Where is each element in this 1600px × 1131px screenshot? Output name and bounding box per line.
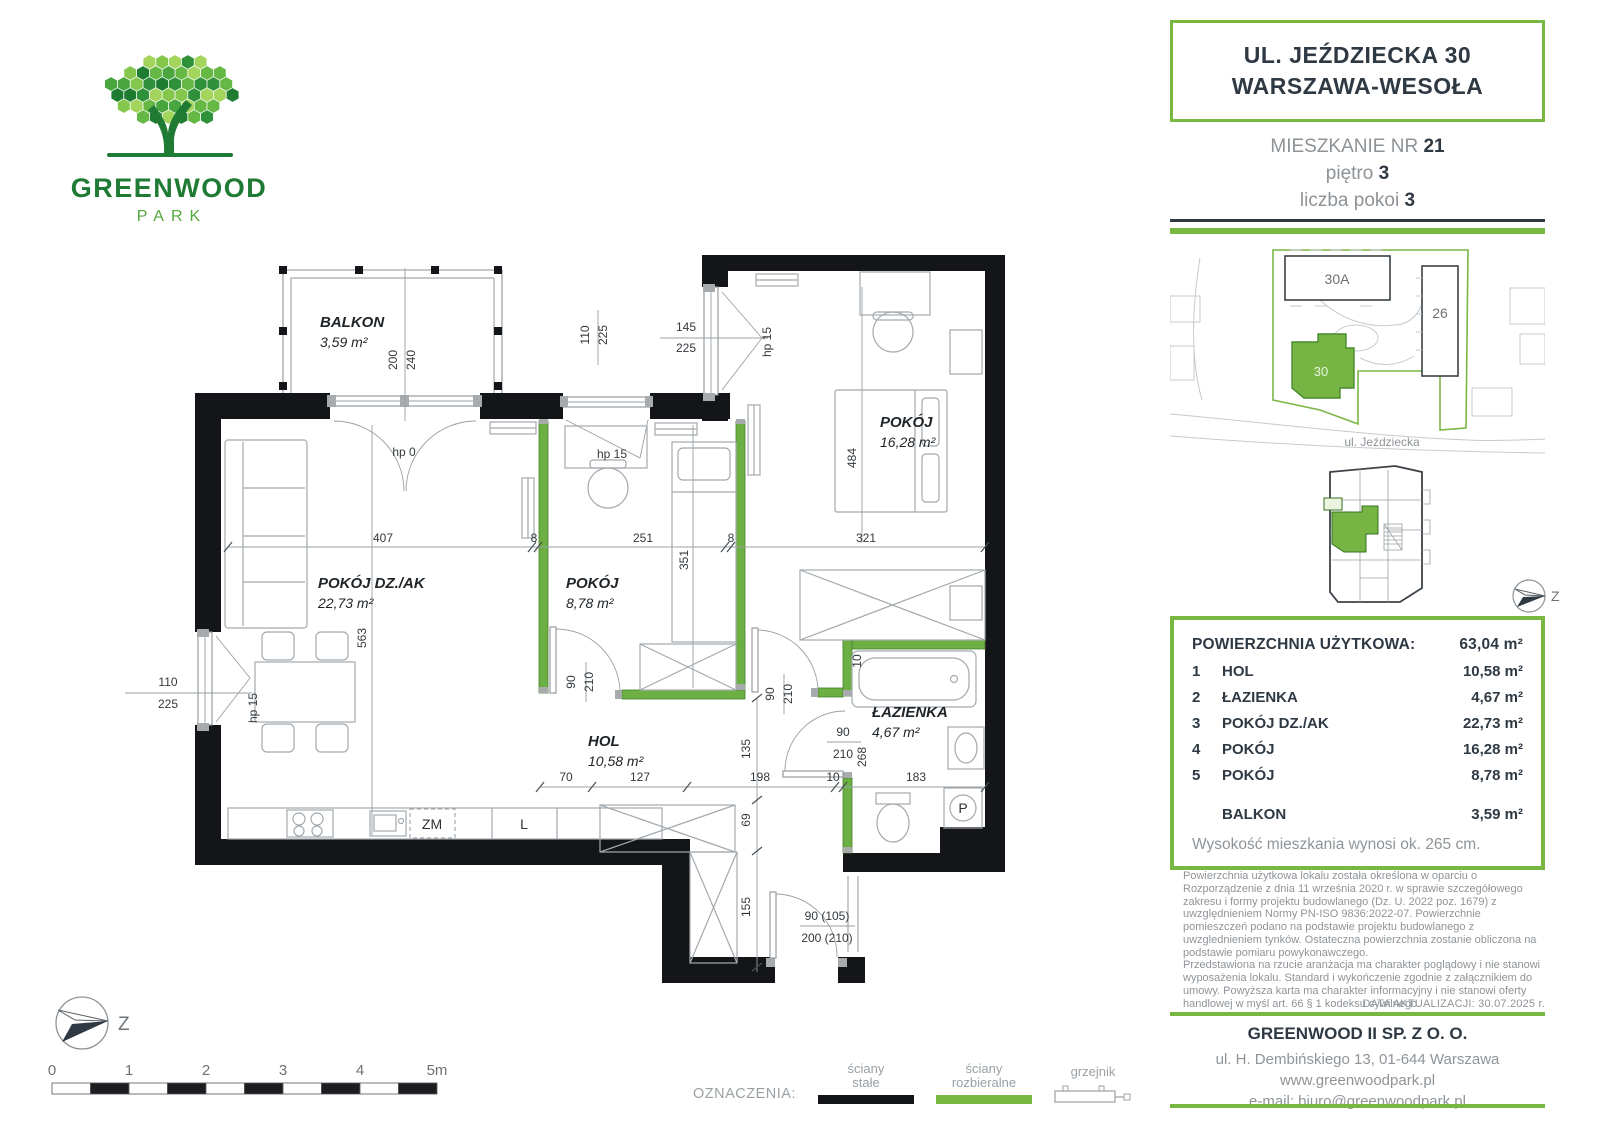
dim-label: 70	[559, 770, 573, 784]
greenwood-park-logo: GREENWOOD PARK	[55, 35, 295, 230]
scale-and-compass: Z 012345m	[20, 950, 490, 1115]
areas-title-row: POWIERZCHNIA UŻYTKOWA: 63,04 m²	[1192, 636, 1523, 654]
dim-label: 210	[582, 672, 596, 692]
solid-wall-swatch	[818, 1095, 914, 1104]
room-label: ŁAZIENKA	[871, 704, 948, 721]
room-area-label: 8,78 m²	[566, 595, 615, 611]
logo-leaf-hex	[201, 88, 213, 102]
dim-label: 8	[728, 531, 735, 545]
logo-leaf-hex	[195, 55, 207, 69]
legend-radiator-label: grzejnik	[1071, 1065, 1116, 1080]
logo-leaf-hex	[150, 66, 162, 80]
logo-leaf-hex	[156, 55, 168, 69]
logo-leaf-hex	[169, 55, 181, 69]
removable-wall-swatch	[936, 1095, 1032, 1104]
room-label: POKÓJ	[880, 413, 933, 431]
svg-text:26: 26	[1432, 305, 1448, 321]
logo-leaf-hex	[201, 66, 213, 80]
doors	[334, 421, 858, 958]
dim-label: 145	[676, 320, 696, 334]
footer: GREENWOOD II SP. Z O. O. ul. H. Dembińsk…	[1170, 1022, 1545, 1112]
logo-leaf-hex	[214, 66, 226, 80]
logo-leaf-hex	[131, 77, 143, 91]
legend-removable-walls: ściany rozbieralne	[936, 1062, 1032, 1104]
dim-label: 240	[404, 350, 418, 370]
logo-leaf-hex	[182, 55, 194, 69]
area-row: 4POKÓJ16,28 m²	[1192, 741, 1523, 758]
logo-leaf-hex	[227, 88, 239, 102]
dim-label: 321	[856, 531, 876, 545]
legend-solid-line2: stałe	[848, 1076, 885, 1091]
floor-value: 3	[1379, 163, 1390, 184]
logo-leaf-hex	[175, 88, 187, 102]
fridge-label: L	[520, 816, 528, 832]
dim-label: 484	[845, 448, 859, 468]
unit-info: MIESZKANIE NR 21 piętro 3 liczba pokoi 3	[1170, 134, 1545, 215]
logo-leaf-hex	[207, 99, 219, 113]
building-30-highlighted: 30	[1292, 334, 1354, 398]
dim-label: hp 15	[246, 693, 260, 723]
unit-label: MIESZKANIE NR	[1270, 136, 1418, 157]
dim-label: 90	[836, 725, 850, 739]
logo-leaf-hex	[195, 99, 207, 113]
dim-label: 225	[596, 325, 610, 345]
scale-tick-label: 5m	[427, 1062, 448, 1079]
walls-removable	[539, 419, 985, 967]
room-area-label: 22,73 m²	[317, 595, 375, 611]
logo-leaf-hex	[201, 110, 213, 124]
areas-panel: POWIERZCHNIA UŻYTKOWA: 63,04 m² 1HOL10,5…	[1170, 616, 1545, 870]
area-row-name: POKÓJ DZ./AK	[1222, 715, 1463, 732]
room-label: BALKON	[320, 314, 385, 331]
rooms-value: 3	[1404, 190, 1415, 211]
legend-radiator: grzejnik	[1054, 1065, 1132, 1104]
scale-tick-label: 3	[279, 1062, 287, 1079]
areas-title: POWIERZCHNIA UŻYTKOWA:	[1192, 636, 1415, 654]
address-header: UL. JEŹDZIECKA 30 WARSZAWA-WESOŁA	[1170, 20, 1545, 122]
dim-label: 210	[781, 684, 795, 704]
floor-key-plan	[1300, 460, 1450, 612]
scale-segment	[399, 1083, 438, 1094]
room-area-label: 3,59 m²	[320, 334, 369, 350]
scale-tick-label: 4	[356, 1062, 364, 1079]
logo-leaf-hex	[156, 77, 168, 91]
logo-leaf-hex	[175, 66, 187, 80]
logo-leaf-hex	[150, 88, 162, 102]
building-30a: 30A	[1285, 250, 1390, 306]
dim-label: 155	[739, 897, 753, 917]
dim-label: 210	[833, 747, 853, 761]
dim-label: 10	[826, 770, 840, 784]
scale-segment	[168, 1083, 207, 1094]
washer-label: P	[958, 800, 967, 816]
logo-leaf-hex	[143, 55, 155, 69]
logo-leaf-hex	[195, 77, 207, 91]
dim-label: 127	[630, 770, 650, 784]
legend-solid-line1: ściany	[848, 1062, 885, 1077]
room-label: POKÓJ DZ./AK	[318, 574, 426, 592]
dim-label: 200 (210)	[801, 931, 852, 945]
header-green-bar	[1170, 228, 1545, 234]
company-name: GREENWOOD II SP. Z O. O.	[1170, 1022, 1545, 1046]
area-row-name: POKÓJ	[1222, 767, 1471, 784]
dim-label: 268	[855, 747, 869, 767]
scale-segment	[245, 1083, 284, 1094]
area-row-no: 1	[1192, 663, 1222, 680]
height-note: Wysokość mieszkania wynosi ok. 265 cm.	[1192, 836, 1523, 854]
scale-tick-label: 0	[48, 1062, 56, 1079]
area-row-area: 10,58 m²	[1463, 663, 1523, 680]
dim-label: 225	[158, 697, 178, 711]
area-row-name: ŁAZIENKA	[1222, 689, 1471, 706]
floor-plan: ZM L P BALKON3,59 m²POKÓJ DZ./AK22,73 m²…	[0, 230, 1140, 1020]
areas-total: 63,04 m²	[1459, 636, 1523, 654]
area-row: 3POKÓJ DZ./AK22,73 m²	[1192, 715, 1523, 732]
scale-segment	[283, 1083, 322, 1094]
footer-rule-top	[1170, 1012, 1545, 1016]
dim-label: 200	[386, 350, 400, 370]
logo-leaf-hex	[188, 88, 200, 102]
area-row-no: 3	[1192, 715, 1222, 732]
rooms-count-line: liczba pokoi 3	[1170, 188, 1545, 215]
area-row-name: POKÓJ	[1222, 741, 1463, 758]
area-row-no: 5	[1192, 767, 1222, 784]
logo-leaf-hex	[137, 88, 149, 102]
area-row-name: HOL	[1222, 663, 1463, 680]
area-row: 1HOL10,58 m²	[1192, 663, 1523, 680]
area-row-area: 16,28 m²	[1463, 741, 1523, 758]
scale-segment	[206, 1083, 245, 1094]
logo-leaf-hex	[143, 77, 155, 91]
dishwasher-label: ZM	[422, 816, 442, 832]
balcony-outline	[279, 266, 502, 393]
svg-text:30A: 30A	[1325, 271, 1351, 287]
room-area-label: 4,67 m²	[872, 724, 921, 740]
floor-label: piętro	[1326, 163, 1374, 184]
scale-segment	[322, 1083, 361, 1094]
dim-label: 135	[739, 739, 753, 759]
areas-rows: 1HOL10,58 m²2ŁAZIENKA4,67 m²3POKÓJ DZ./A…	[1192, 654, 1523, 823]
area-row-area: 22,73 m²	[1463, 715, 1523, 732]
logo-leaf-hex	[182, 77, 194, 91]
dim-label: 351	[677, 550, 691, 570]
address-line-2: WARSZAWA-WESOŁA	[1173, 71, 1542, 102]
logo-leaf-hex	[124, 88, 136, 102]
logo-leaf-hex	[137, 66, 149, 80]
logo-leaf-hex	[111, 88, 123, 102]
room-label: POKÓJ	[566, 574, 619, 592]
building-26: 26	[1416, 266, 1458, 376]
disclaimer: Powierzchnia użytkowa lokalu została okr…	[1183, 870, 1541, 1010]
scale-segment	[129, 1083, 168, 1094]
room-area-label: 16,28 m²	[880, 434, 937, 450]
dim-label: hp 0	[392, 445, 416, 459]
unit-number-line: MIESZKANIE NR 21	[1170, 134, 1545, 161]
legend-removable-line2: rozbieralne	[952, 1076, 1016, 1091]
logo-leaf-hex	[105, 77, 117, 91]
street-label: ul. Jeździecka	[1344, 435, 1420, 449]
dim-label: 69	[739, 813, 753, 827]
dim-label: 90	[763, 687, 777, 701]
update-date: DATA AKTUALIZACJI: 30.07.2025 r.	[1170, 998, 1545, 1010]
room-area-label: 10,58 m²	[588, 753, 645, 769]
legend: OZNACZENIA: ściany stałe ściany rozbiera…	[693, 1046, 1153, 1104]
dim-label: 225	[676, 341, 696, 355]
area-row-no: 2	[1192, 689, 1222, 706]
unit-number: 21	[1423, 136, 1444, 157]
legend-title: OZNACZENIA:	[693, 1086, 796, 1104]
logo-leaf-hex	[124, 66, 136, 80]
legend-solid-walls: ściany stałe	[818, 1062, 914, 1104]
area-row-area: 8,78 m²	[1471, 767, 1523, 784]
dim-label: 110	[578, 325, 592, 344]
north-label-main: Z	[118, 1014, 130, 1035]
dim-label: 198	[750, 770, 770, 784]
scale-tick-label: 1	[125, 1062, 133, 1079]
area-row: 2ŁAZIENKA4,67 m²	[1192, 689, 1523, 706]
logo-leaf-hex	[214, 88, 226, 102]
radiator-icon	[1054, 1084, 1132, 1104]
area-row-no	[1192, 806, 1222, 823]
area-row-area: 3,59 m²	[1471, 806, 1523, 823]
company-email: e-mail: biuro@greenwoodpark.pl	[1170, 1091, 1545, 1112]
scale-bar: 012345m	[48, 1062, 448, 1094]
logo-leaf-hex	[118, 99, 130, 113]
dim-label: 183	[906, 770, 926, 784]
north-arrow-main: Z	[56, 997, 130, 1049]
legend-removable-line1: ściany	[952, 1062, 1016, 1077]
logo-title: GREENWOOD	[71, 173, 268, 203]
header-divider	[1170, 219, 1545, 222]
logo-ground-line	[107, 153, 233, 157]
dim-label: 110	[158, 675, 177, 689]
dim-label: hp 15	[597, 447, 627, 461]
logo-subtitle: PARK	[137, 208, 207, 225]
disclaimer-paragraph-1: Powierzchnia użytkowa lokalu została okr…	[1183, 870, 1541, 959]
area-row-name: BALKON	[1222, 806, 1471, 823]
north-label: Z	[1551, 588, 1560, 604]
dim-label: 407	[373, 531, 393, 545]
logo-leaf-hex	[207, 77, 219, 91]
room-label: HOL	[588, 733, 620, 750]
scale-tick-label: 2	[202, 1062, 210, 1079]
logo-leaf-hex	[188, 110, 200, 124]
floor-line: piętro 3	[1170, 161, 1545, 188]
logo-leaf-hex	[137, 110, 149, 124]
logo-tree-crown	[105, 55, 239, 124]
area-row-no: 4	[1192, 741, 1222, 758]
scale-segment	[52, 1083, 91, 1094]
area-row: BALKON3,59 m²	[1192, 806, 1523, 823]
dim-label: 8	[531, 531, 538, 545]
logo-leaf-hex	[163, 66, 175, 80]
company-address: ul. H. Dembińskiego 13, 01-644 Warszawa	[1170, 1049, 1545, 1070]
logo-leaf-hex	[118, 77, 130, 91]
dim-label: hp 15	[760, 327, 774, 357]
scale-segment	[91, 1083, 130, 1094]
site-plan: 30A 26 30 ul. Jeździecka	[1170, 238, 1545, 456]
logo-leaf-hex	[169, 77, 181, 91]
dim-label: 10	[850, 654, 864, 668]
dim-label: 563	[355, 628, 369, 648]
scale-segment	[360, 1083, 399, 1094]
address-line-1: UL. JEŹDZIECKA 30	[1173, 40, 1542, 71]
company-website: www.greenwoodpark.pl	[1170, 1070, 1545, 1091]
dim-label: 251	[633, 531, 653, 545]
rooms-label: liczba pokoi	[1300, 190, 1399, 211]
dim-label: 90	[564, 675, 578, 689]
area-row-area: 4,67 m²	[1471, 689, 1523, 706]
footer-rule-bottom	[1170, 1104, 1545, 1108]
area-row: 5POKÓJ8,78 m²	[1192, 767, 1523, 784]
dim-label: 90 (105)	[805, 909, 850, 923]
svg-text:30: 30	[1314, 364, 1328, 379]
logo-leaf-hex	[220, 77, 232, 91]
logo-leaf-hex	[163, 88, 175, 102]
logo-leaf-hex	[131, 99, 143, 113]
logo-leaf-hex	[188, 66, 200, 80]
